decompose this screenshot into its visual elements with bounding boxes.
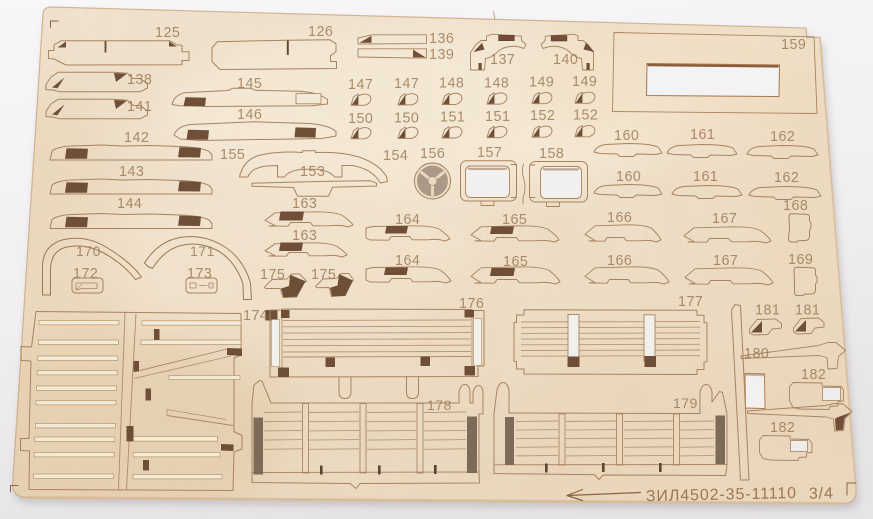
svg-text:156: 156 (420, 146, 445, 162)
svg-text:147: 147 (394, 76, 419, 92)
svg-text:157: 157 (477, 145, 502, 161)
svg-text:165: 165 (503, 254, 528, 270)
svg-text:177: 177 (678, 294, 703, 310)
svg-text:163: 163 (292, 196, 317, 212)
svg-text:178: 178 (427, 397, 452, 413)
svg-text:152: 152 (573, 108, 598, 124)
svg-text:154: 154 (383, 148, 408, 164)
svg-text:172: 172 (73, 266, 98, 282)
svg-text:152: 152 (530, 108, 555, 124)
svg-text:179: 179 (673, 395, 698, 411)
svg-text:138: 138 (127, 72, 152, 88)
svg-text:137: 137 (490, 52, 515, 68)
svg-text:182: 182 (770, 420, 795, 436)
svg-text:159: 159 (781, 37, 806, 53)
svg-text:3/4: 3/4 (809, 485, 834, 503)
svg-text:162: 162 (770, 129, 795, 145)
svg-text:155: 155 (220, 147, 245, 163)
svg-text:180: 180 (744, 346, 769, 362)
svg-text:182: 182 (801, 367, 826, 383)
svg-text:153: 153 (300, 164, 325, 180)
svg-text:125: 125 (155, 25, 180, 41)
svg-text:136: 136 (429, 31, 454, 47)
svg-text:161: 161 (693, 169, 718, 185)
svg-text:181: 181 (755, 303, 780, 319)
svg-text:167: 167 (713, 253, 738, 269)
svg-text:142: 142 (124, 130, 149, 146)
svg-text:143: 143 (119, 164, 144, 180)
svg-text:150: 150 (394, 111, 419, 127)
svg-text:169: 169 (788, 252, 813, 268)
svg-text:162: 162 (774, 170, 799, 186)
svg-text:174: 174 (243, 308, 268, 324)
svg-text:150: 150 (348, 111, 373, 127)
svg-text:144: 144 (117, 196, 142, 212)
svg-text:151: 151 (440, 110, 465, 126)
svg-text:139: 139 (429, 47, 454, 63)
svg-text:161: 161 (690, 127, 715, 143)
svg-text:147: 147 (348, 77, 373, 93)
svg-text:160: 160 (616, 169, 641, 185)
svg-text:176: 176 (459, 296, 484, 312)
svg-text:171: 171 (190, 243, 215, 259)
svg-text:148: 148 (484, 76, 509, 92)
svg-text:126: 126 (308, 24, 333, 40)
svg-text:170: 170 (76, 243, 101, 259)
svg-text:173: 173 (187, 266, 212, 282)
svg-text:160: 160 (614, 128, 639, 144)
svg-text:146: 146 (237, 107, 262, 123)
svg-text:181: 181 (795, 303, 820, 319)
svg-text:163: 163 (292, 228, 317, 244)
svg-text:158: 158 (539, 146, 564, 162)
svg-text:167: 167 (712, 211, 737, 227)
svg-text:149: 149 (572, 74, 597, 90)
svg-text:145: 145 (237, 76, 262, 92)
svg-text:ЗИЛ4502-35-11110: ЗИЛ4502-35-11110 (646, 485, 797, 505)
svg-text:151: 151 (485, 109, 510, 125)
svg-text:168: 168 (783, 198, 808, 214)
svg-text:148: 148 (439, 76, 464, 92)
svg-text:175: 175 (260, 267, 285, 283)
svg-text:140: 140 (553, 52, 578, 68)
svg-text:175: 175 (311, 267, 336, 283)
svg-text:166: 166 (607, 210, 632, 226)
svg-text:141: 141 (127, 99, 152, 115)
svg-text:149: 149 (529, 75, 554, 91)
